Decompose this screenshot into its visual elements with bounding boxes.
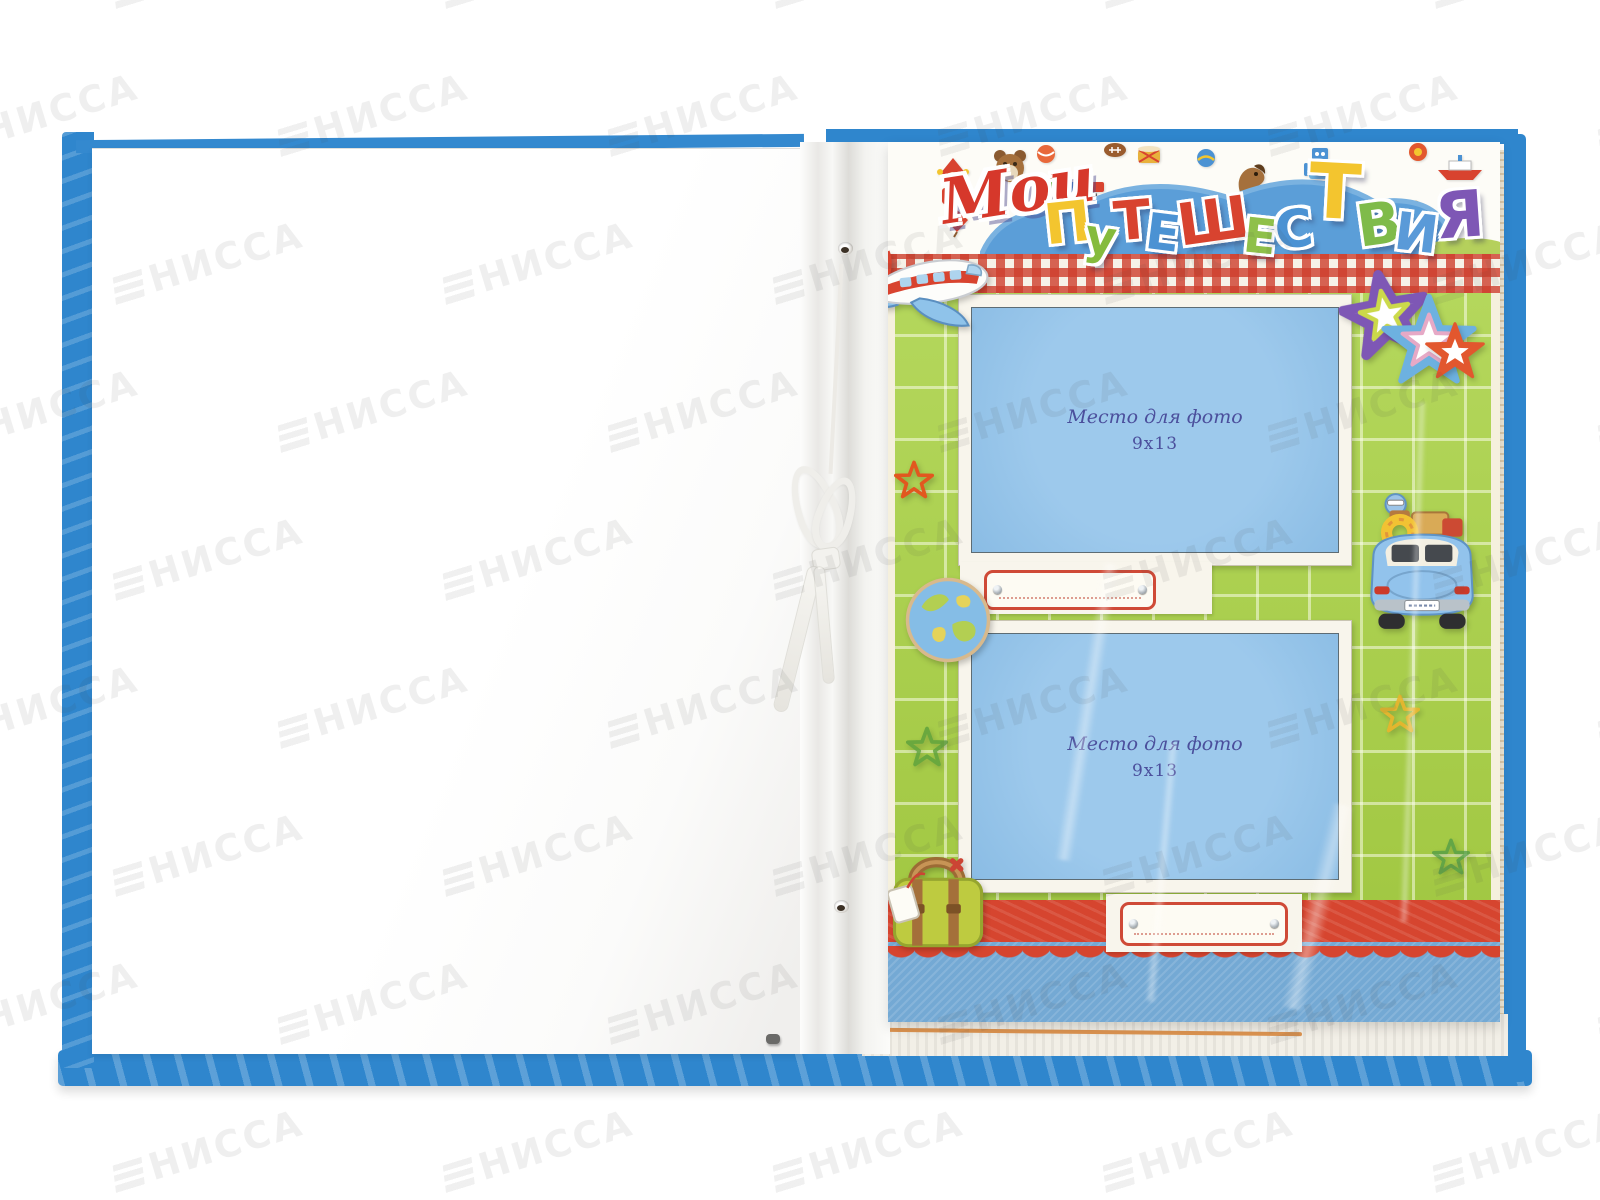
nissa-watermark: НИССА [1098, 0, 1299, 16]
nissa-watermark: НИССА [108, 0, 309, 16]
photo-placeholder-size: 9x13 [1132, 434, 1178, 454]
watermark-text: НИССА [473, 0, 638, 5]
nissa-watermark: НИССА [1428, 0, 1600, 16]
nissa-logo-icon [112, 0, 145, 12]
nissa-logo-icon [442, 0, 475, 12]
nissa-watermark: НИССА [1428, 1101, 1600, 1200]
watermark-text: НИССА [1133, 1101, 1298, 1189]
nissa-watermark: НИССА [438, 0, 639, 16]
page-title-word: ПуТЕШЕСТВИЯ [1046, 172, 1483, 248]
watermark-text: НИССА [1133, 0, 1298, 5]
photo-placeholder-size: 9x13 [1132, 761, 1178, 781]
photo-frame-2: Место для фото 9x13 [958, 620, 1352, 893]
watermark-text: НИССА [803, 1101, 968, 1189]
watermark-text: НИССА [143, 1101, 308, 1189]
nissa-logo-icon [1432, 0, 1465, 12]
nissa-watermark: НИССА [1593, 657, 1600, 756]
toy-drum-icon [1136, 144, 1162, 166]
nissa-watermark: НИССА [1098, 1101, 1299, 1200]
suitcase-sticker-icon [888, 842, 994, 956]
caption-plate-1 [984, 570, 1156, 610]
album-product-photo: Мои ПуТЕШЕСТВИЯ Место для фото 9x13 Мест… [0, 0, 1600, 1200]
title-letter: Ш [1174, 187, 1253, 254]
watermark-text: НИССА [1463, 0, 1600, 5]
binding-hole-top [838, 242, 853, 255]
nissa-watermark: НИССА [108, 1101, 309, 1200]
nissa-watermark: НИССА [1593, 361, 1600, 460]
photo-placeholder-1: Место для фото 9x13 [971, 307, 1339, 553]
nissa-logo-icon [1102, 1153, 1135, 1196]
star-cluster-orange-icon [1424, 320, 1486, 382]
outline-star-orange-icon [894, 460, 934, 500]
nissa-watermark: НИССА [1593, 953, 1600, 1052]
nissa-logo-icon [442, 1153, 475, 1196]
outline-star-yellow-icon [1380, 694, 1420, 734]
nissa-watermark: НИССА [768, 0, 969, 16]
binding-hole-bottom [834, 900, 849, 913]
title-letter: Я [1433, 182, 1487, 249]
airplane-sticker-icon [888, 236, 1000, 340]
album-cover-left-edge [62, 132, 94, 1068]
brad-fastener-icon [1129, 919, 1138, 928]
nissa-logo-icon [1102, 0, 1135, 12]
watermark-text: НИССА [473, 1101, 638, 1189]
caption-dotted-line [999, 597, 1142, 599]
toy-football-icon [1103, 142, 1127, 158]
photo-placeholder-caption: Место для фото [1067, 406, 1242, 428]
photo-placeholder-2: Место для фото 9x13 [971, 633, 1339, 880]
binding-screw [766, 1034, 780, 1044]
car-with-luggage-sticker-icon [1360, 486, 1484, 638]
caption-plate-2 [1120, 902, 1288, 946]
watermark-text: НИССА [1463, 1101, 1600, 1189]
outline-star-green-icon [906, 726, 948, 768]
nissa-logo-icon [772, 1153, 805, 1196]
brad-fastener-icon [993, 585, 1002, 594]
page-stack-accent-line [882, 1028, 1302, 1036]
caption-dotted-line [1134, 933, 1273, 935]
album-decorated-page: Мои ПуТЕШЕСТВИЯ Место для фото 9x13 Мест… [888, 142, 1500, 1022]
outline-star-green-icon [1432, 838, 1470, 876]
watermark-text: НИССА [143, 0, 308, 5]
blank-left-page [92, 148, 804, 1054]
globe-sticker-icon [904, 574, 992, 666]
nissa-logo-icon [1432, 1153, 1465, 1196]
nissa-logo-icon [772, 0, 805, 12]
watermark-text: НИССА [803, 0, 968, 5]
brad-fastener-icon [1138, 585, 1147, 594]
nissa-watermark: НИССА [1593, 65, 1600, 164]
toy-ball-icon [1408, 142, 1428, 162]
brad-fastener-icon [1270, 919, 1279, 928]
book-gutter [800, 142, 890, 1054]
photo-frame-1: Место для фото 9x13 [958, 294, 1352, 566]
nissa-watermark: НИССА [438, 1101, 639, 1200]
nissa-logo-icon [112, 1153, 145, 1196]
photo-placeholder-caption: Место для фото [1067, 733, 1242, 755]
nissa-watermark: НИССА [768, 1101, 969, 1200]
toy-ball-icon [1196, 148, 1216, 168]
album-cover-right-edge [1504, 134, 1526, 1082]
title-letter: И [1391, 205, 1441, 262]
